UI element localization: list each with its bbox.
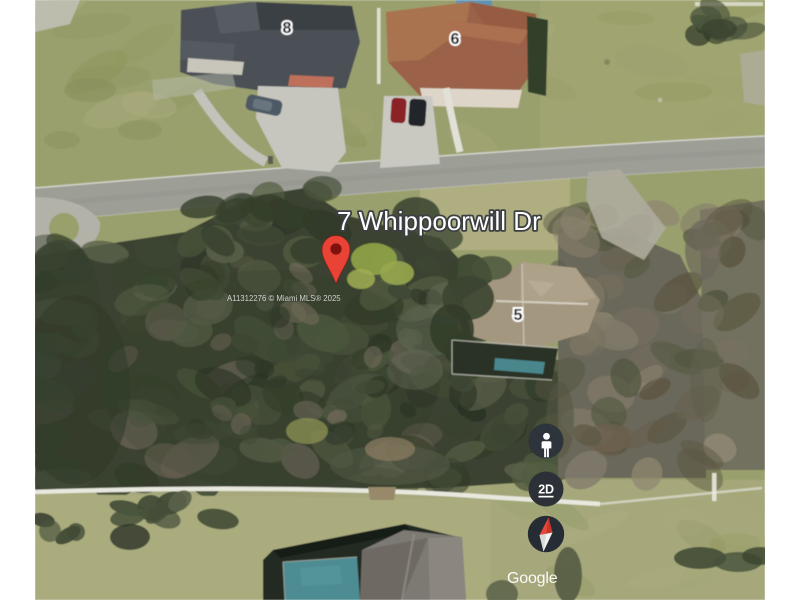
svg-text:8: 8 — [283, 20, 292, 37]
svg-text:2D: 2D — [538, 483, 554, 497]
svg-text:Google: Google — [507, 570, 558, 587]
svg-text:7 Whippoorwill Dr: 7 Whippoorwill Dr — [337, 206, 541, 236]
svg-text:6: 6 — [451, 31, 460, 48]
svg-text:A11312276 © Miami MLS® 2025: A11312276 © Miami MLS® 2025 — [227, 294, 341, 303]
svg-text:5: 5 — [514, 307, 523, 324]
